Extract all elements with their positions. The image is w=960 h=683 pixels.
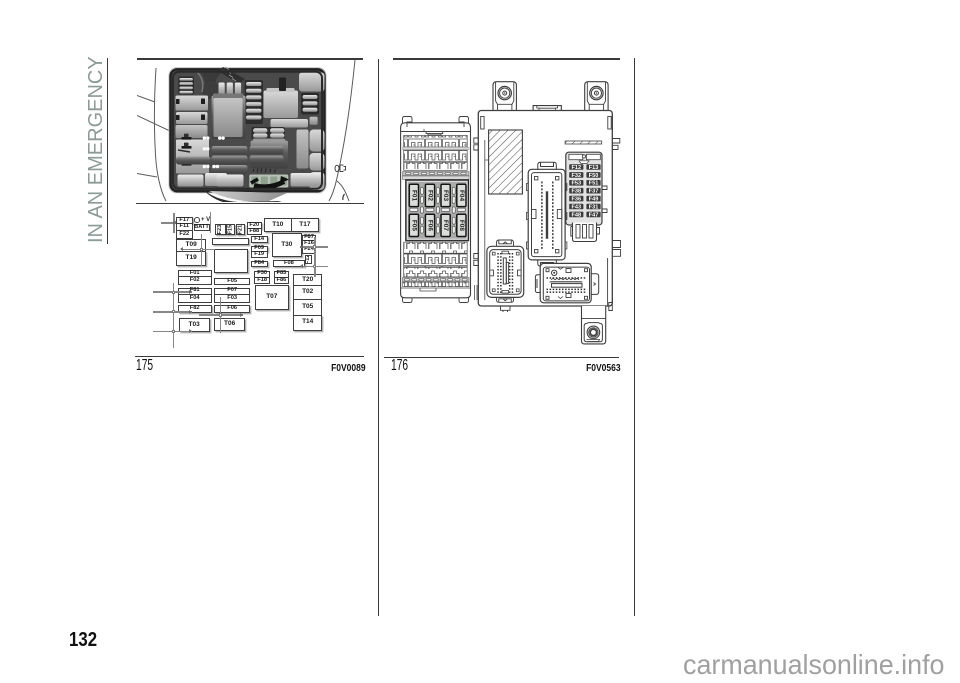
svg-text:F50: F50 [589,173,599,179]
svg-text:F21: F21 [237,225,243,234]
svg-text:F38: F38 [571,189,581,195]
svg-text:F48: F48 [571,212,581,218]
svg-text:F04: F04 [458,190,465,201]
svg-text:F03: F03 [442,190,449,201]
svg-text:F43: F43 [571,204,581,210]
svg-text:F01: F01 [411,190,418,201]
svg-text:F12: F12 [571,165,581,171]
svg-text:F07: F07 [442,220,449,231]
svg-text:F37: F37 [589,189,599,195]
svg-text:F23: F23 [218,225,224,234]
svg-text:F36: F36 [571,197,581,203]
svg-text:F15: F15 [228,225,234,234]
svg-text:F13: F13 [589,165,599,171]
svg-text:F49: F49 [589,197,599,203]
svg-text:F31: F31 [589,204,599,210]
svg-text:F47: F47 [589,212,599,218]
svg-text:F02: F02 [427,190,434,201]
svg-text:F06: F06 [427,220,434,231]
svg-text:F53: F53 [571,181,581,187]
svg-text:F08: F08 [458,220,465,231]
svg-text:F32: F32 [571,173,581,179]
svg-text:F12: F12 [306,256,310,263]
svg-text:F51: F51 [589,181,599,187]
svg-text:F05: F05 [411,220,418,231]
